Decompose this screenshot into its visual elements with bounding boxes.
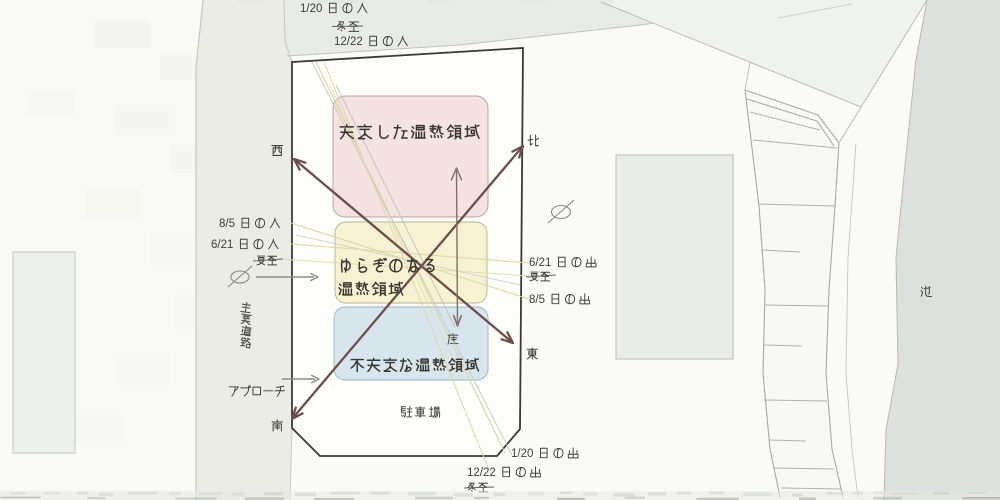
svg-text:8/5: 8/5 <box>219 218 235 230</box>
svg-text:8/5: 8/5 <box>529 294 545 306</box>
svg-text:12/22: 12/22 <box>467 467 496 479</box>
svg-text:12/22: 12/22 <box>334 36 363 48</box>
svg-text:6/21: 6/21 <box>211 239 233 251</box>
svg-text:6/21: 6/21 <box>529 257 551 269</box>
svg-text:1/20: 1/20 <box>511 448 533 460</box>
svg-text:1/20: 1/20 <box>300 3 322 15</box>
